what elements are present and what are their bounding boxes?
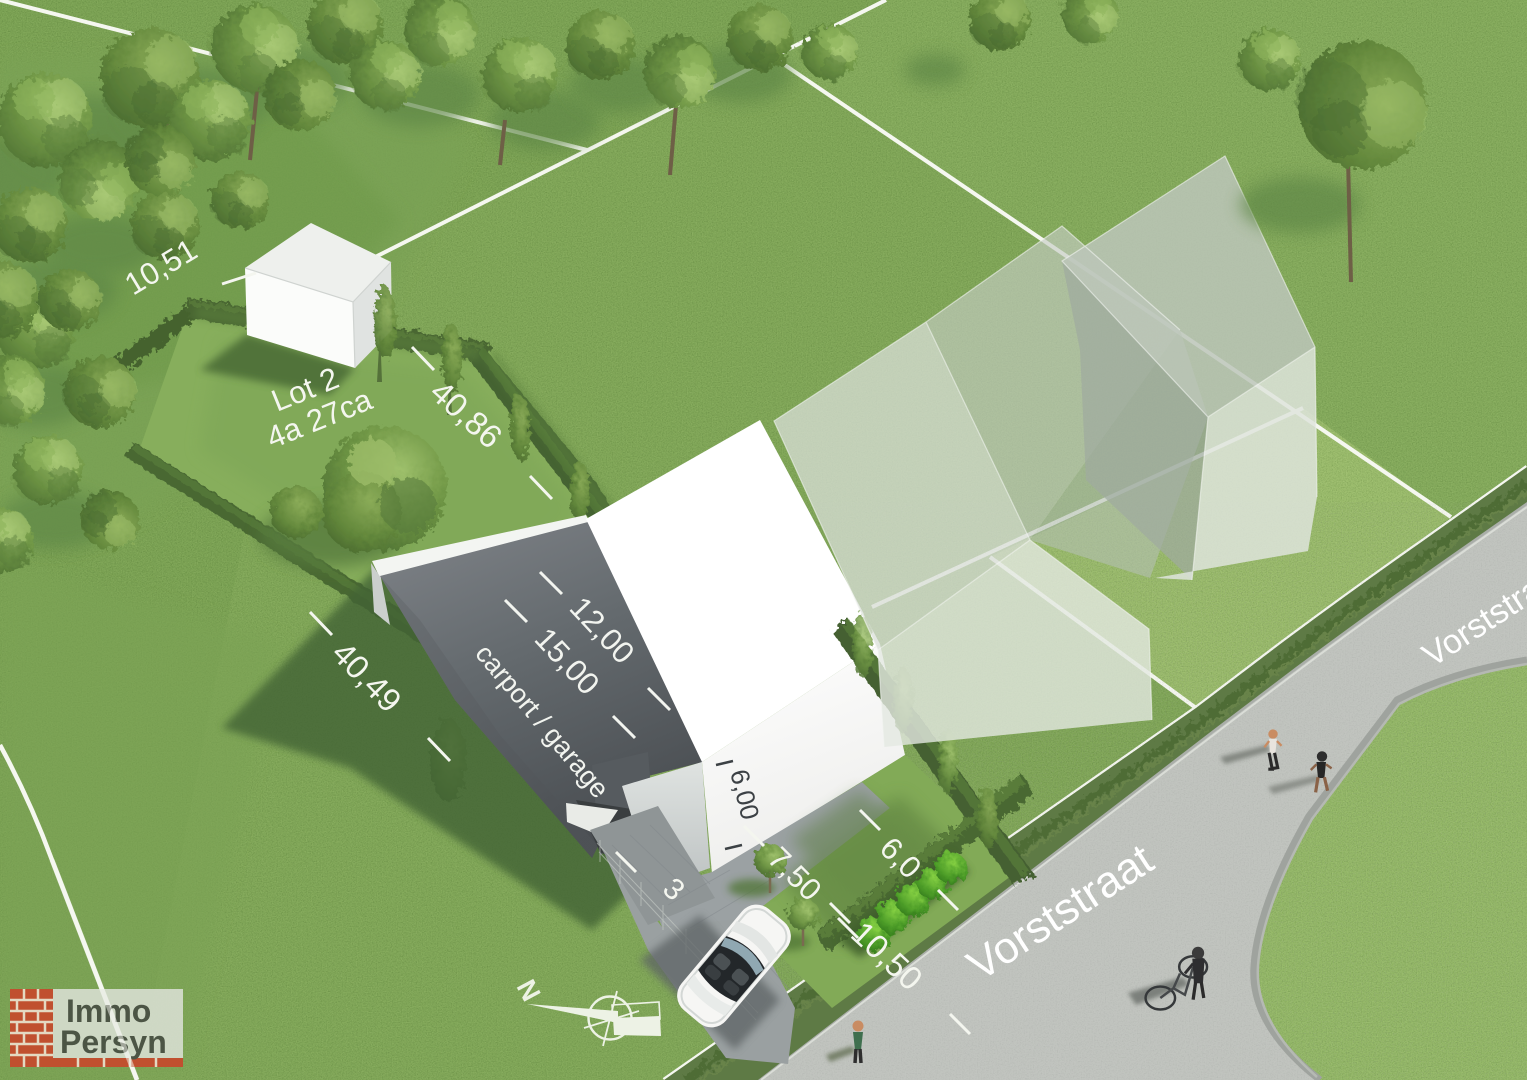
svg-text:Persyn: Persyn	[60, 1024, 167, 1060]
